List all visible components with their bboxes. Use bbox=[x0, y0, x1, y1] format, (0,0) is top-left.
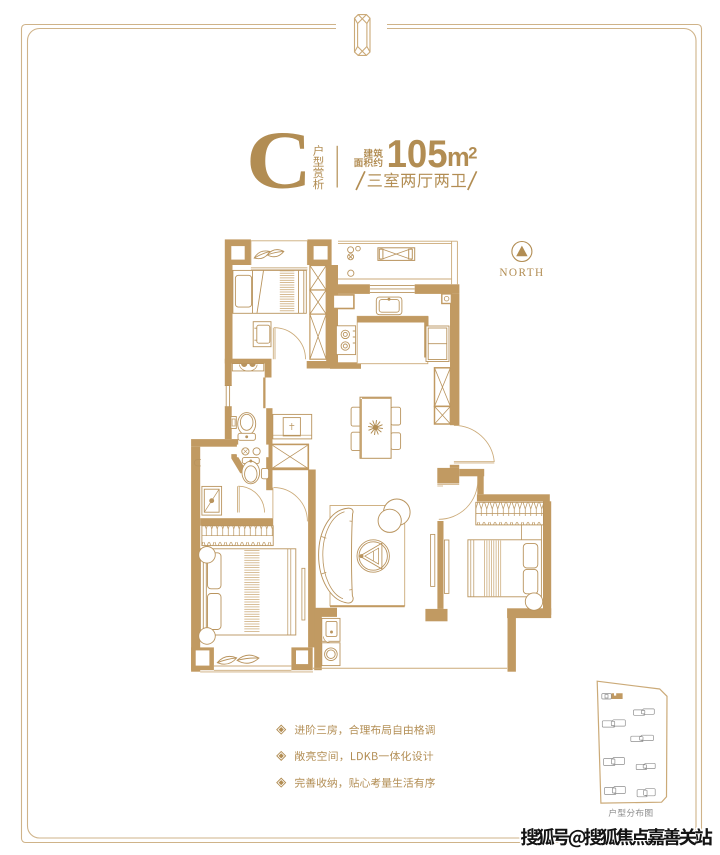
svg-text:C: C bbox=[246, 113, 312, 205]
svg-text:105: 105 bbox=[387, 133, 448, 176]
svg-text:m: m bbox=[447, 144, 470, 172]
svg-text:2: 2 bbox=[468, 144, 477, 162]
svg-text:NORTH: NORTH bbox=[499, 267, 544, 279]
